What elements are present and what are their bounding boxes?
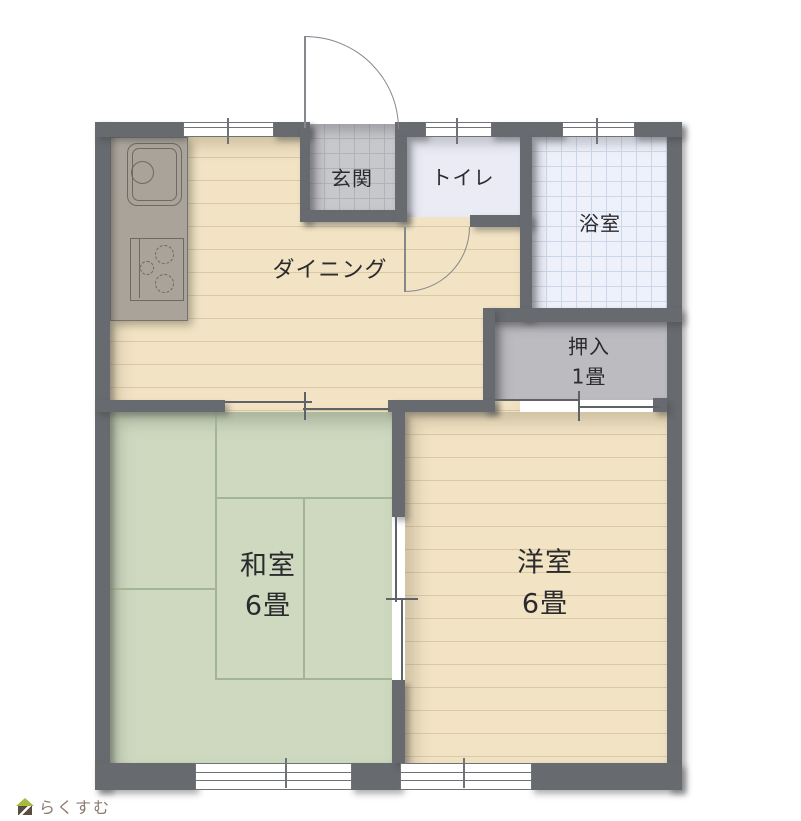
- window-tick: [463, 758, 465, 788]
- wall-bottom-3: [530, 763, 682, 790]
- room-label-youshitsu: 洋室: [517, 541, 573, 580]
- room-size-closet: 1畳: [572, 361, 607, 390]
- window-toilet: [425, 122, 492, 137]
- wall-top-4: [490, 122, 562, 137]
- tatami-line: [215, 412, 217, 678]
- wall-toilet-bath: [520, 137, 532, 320]
- floor-plan: ダイニング 玄関 トイレ 浴室 押入 1畳 和室 6畳 洋室 6畳 らくすむ: [0, 0, 801, 821]
- wall-washitsu-top: [95, 400, 225, 412]
- sliding-door-tick: [386, 598, 418, 600]
- sliding-door-tick: [304, 392, 306, 420]
- sliding-door-washitsu-youshitsu: [395, 517, 397, 602]
- wall-closet-left: [483, 308, 495, 412]
- sliding-door-closet: [578, 406, 660, 408]
- wall-bath-bottom: [483, 308, 682, 322]
- wall-genkan-left: [300, 122, 310, 222]
- room-label-toilet: トイレ: [432, 162, 495, 191]
- wall-partition-bottom: [392, 680, 405, 763]
- tatami-line: [108, 588, 215, 590]
- sink-drain-icon: [131, 161, 154, 184]
- sliding-door-dining-washitsu: [303, 408, 390, 410]
- wall-dining-youshitsu: [388, 400, 495, 412]
- sliding-door-washitsu-youshitsu: [401, 598, 403, 680]
- tatami-line: [215, 678, 392, 680]
- wall-partition-top: [392, 412, 405, 517]
- wall-genkan-bottom: [300, 210, 407, 222]
- house-icon: [16, 798, 34, 815]
- sliding-door-dining-washitsu: [225, 401, 312, 403]
- house-roof-icon: [16, 798, 34, 806]
- room-label-dining: ダイニング: [272, 252, 387, 284]
- wall-closet-right-stub: [653, 398, 667, 412]
- wall-top-1: [95, 122, 183, 137]
- room-size-youshitsu: 6畳: [522, 582, 568, 621]
- wall-top-5: [633, 122, 682, 137]
- logo: らくすむ: [16, 794, 111, 818]
- entrance-door-arc: [305, 36, 399, 129]
- window-washitsu: [195, 763, 352, 790]
- window-tick: [285, 758, 287, 788]
- sliding-door-tick: [578, 391, 580, 421]
- room-label-bath: 浴室: [579, 208, 621, 237]
- wall-bottom-1: [95, 763, 195, 790]
- window-tick: [227, 118, 229, 144]
- window-youshitsu: [400, 763, 532, 790]
- wall-bottom-2: [350, 763, 400, 790]
- house-body-icon: [18, 806, 32, 815]
- logo-text: らくすむ: [39, 794, 111, 818]
- room-label-closet: 押入: [568, 331, 610, 360]
- tatami-line: [303, 497, 305, 678]
- room-label-washitsu: 和室: [240, 544, 296, 583]
- wall-genkan-toilet: [395, 137, 407, 222]
- stove-burner-icon: [155, 245, 174, 264]
- room-label-genkan: 玄関: [331, 163, 373, 192]
- room-size-washitsu: 6畳: [245, 584, 291, 623]
- stove-burner-icon: [140, 261, 154, 275]
- wall-outer-left: [95, 122, 110, 790]
- window-tick: [456, 118, 458, 144]
- window-bath: [562, 122, 635, 137]
- wall-top-3: [395, 122, 425, 137]
- wall-outer-right: [667, 122, 682, 790]
- window-tick: [596, 118, 598, 144]
- stove-burner-icon: [155, 274, 174, 293]
- sliding-door-closet: [495, 399, 580, 401]
